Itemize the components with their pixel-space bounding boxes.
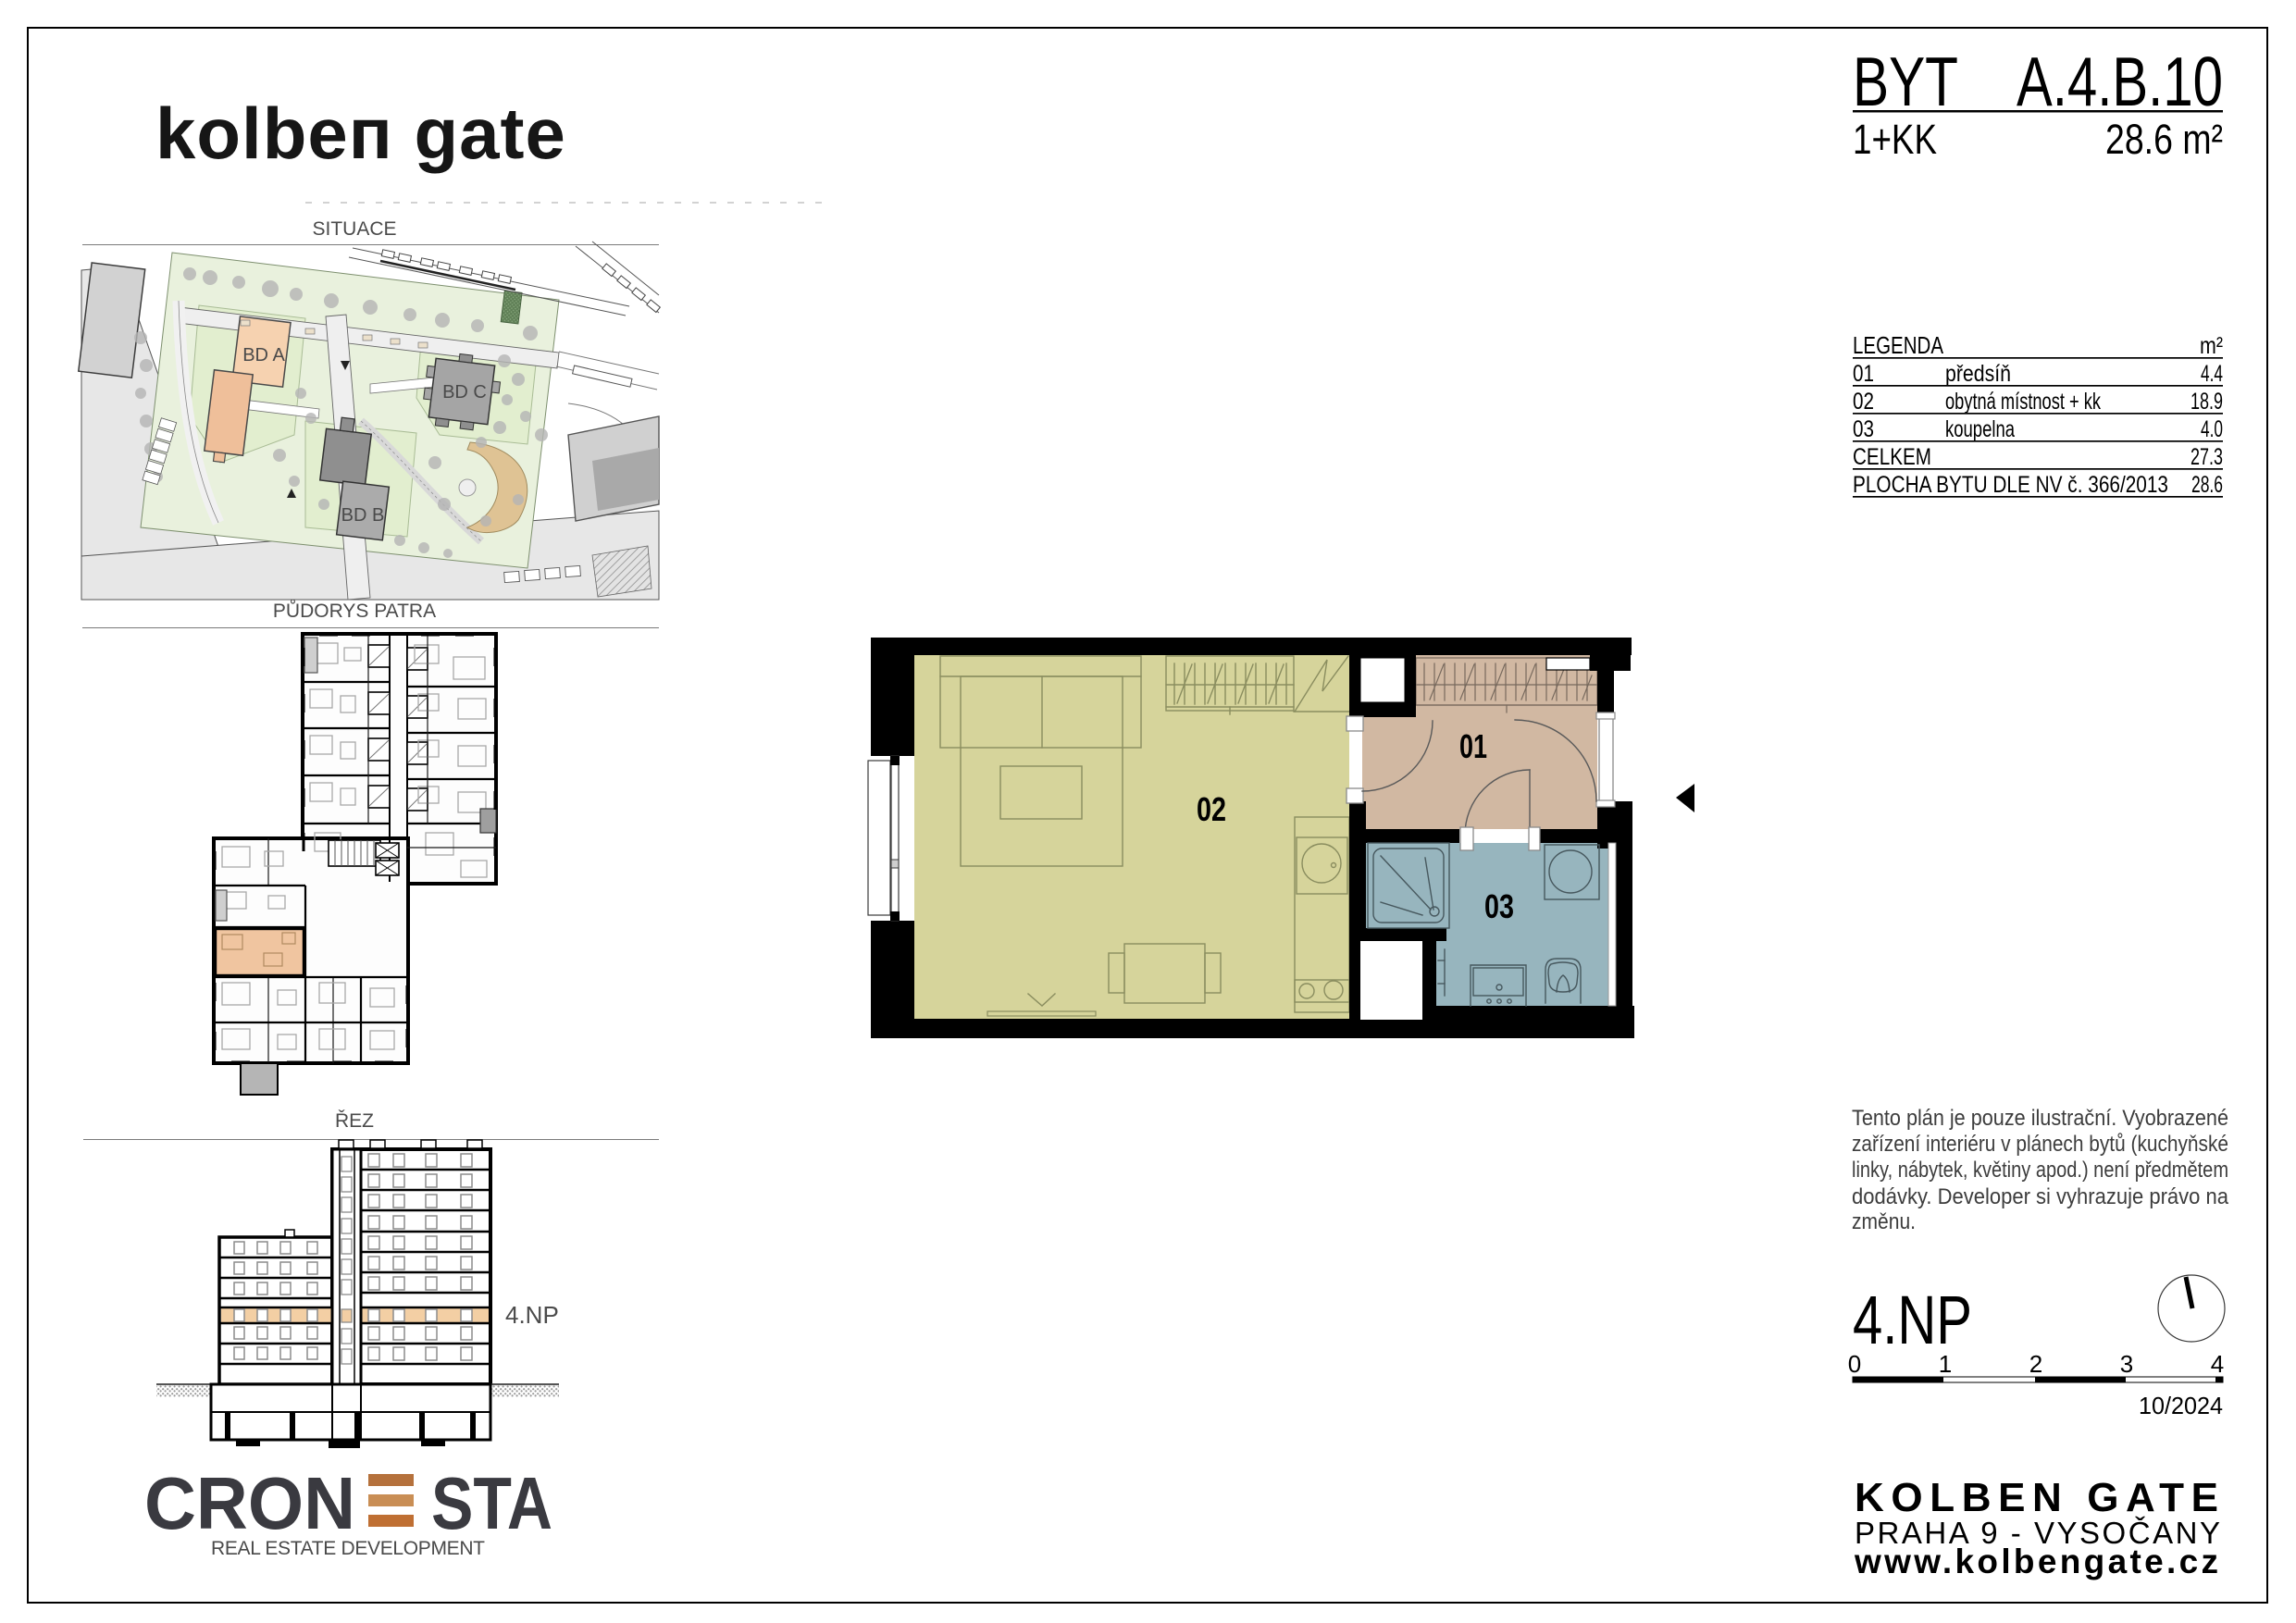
- svg-text:2: 2: [2029, 1350, 2042, 1378]
- svg-text:0: 0: [1848, 1350, 1861, 1378]
- svg-text:01: 01: [1853, 361, 1874, 387]
- svg-text:28.6: 28.6: [2191, 472, 2223, 498]
- svg-text:předsíň: předsíň: [1945, 361, 2011, 387]
- svg-text:10/2024: 10/2024: [2139, 1392, 2223, 1419]
- svg-text:1: 1: [1939, 1350, 1952, 1378]
- svg-text:4.NP: 4.NP: [1853, 1282, 1972, 1358]
- svg-text:03: 03: [1853, 416, 1874, 442]
- svg-text:18.9: 18.9: [2191, 389, 2223, 415]
- svg-text:obytná místnost + kk: obytná místnost + kk: [1945, 389, 2101, 415]
- svg-text:změnu.: změnu.: [1852, 1209, 1916, 1234]
- svg-text:Tento plán je pouze ilustrační: Tento plán je pouze ilustrační. Vyobraze…: [1852, 1106, 2228, 1131]
- svg-text:3: 3: [2120, 1350, 2133, 1378]
- svg-text:KOLBEN GATE: KOLBEN GATE: [1855, 1475, 2218, 1520]
- svg-text:CRON: CRON: [144, 1462, 355, 1544]
- svg-text:PLOCHA BYTU DLE NV č. 366/2013: PLOCHA BYTU DLE NV č. 366/2013: [1853, 472, 2168, 498]
- svg-text:linky, nábytek, květiny apod.): linky, nábytek, květiny apod.) není před…: [1852, 1158, 2228, 1183]
- svg-text:dodávky. Developer si vyhrazuj: dodávky. Developer si vyhrazuje právo na: [1852, 1184, 2229, 1209]
- svg-text:LEGENDA: LEGENDA: [1853, 331, 1944, 359]
- svg-text:BD B: BD B: [341, 505, 385, 526]
- svg-text:03: 03: [1484, 887, 1514, 925]
- svg-text:27.3: 27.3: [2191, 444, 2223, 470]
- svg-text:02: 02: [1853, 389, 1874, 415]
- svg-text:STA: STA: [431, 1462, 552, 1544]
- svg-text:CELKEM: CELKEM: [1853, 444, 1931, 470]
- svg-text:4.0: 4.0: [2201, 416, 2223, 442]
- svg-text:zařízení interiéru v plánech b: zařízení interiéru v plánech bytů (kuchy…: [1852, 1132, 2228, 1157]
- svg-text:4.NP: 4.NP: [505, 1301, 559, 1329]
- svg-text:BYT: BYT: [1853, 43, 1958, 120]
- svg-text:4.4: 4.4: [2201, 361, 2223, 387]
- svg-text:BD A: BD A: [242, 345, 285, 365]
- svg-text:m²: m²: [2200, 331, 2223, 359]
- svg-text:BD C: BD C: [442, 382, 487, 403]
- svg-text:01: 01: [1459, 727, 1487, 765]
- svg-text:1+KK: 1+KK: [1853, 116, 1937, 163]
- svg-text:A.4.B.10: A.4.B.10: [2017, 43, 2223, 120]
- svg-text:02: 02: [1197, 790, 1226, 828]
- svg-text:REAL ESTATE DEVELOPMENT: REAL ESTATE DEVELOPMENT: [211, 1538, 485, 1559]
- svg-text:28.6 m²: 28.6 m²: [2105, 116, 2223, 163]
- svg-text:4: 4: [2211, 1350, 2224, 1378]
- svg-text:koupelna: koupelna: [1945, 416, 2015, 442]
